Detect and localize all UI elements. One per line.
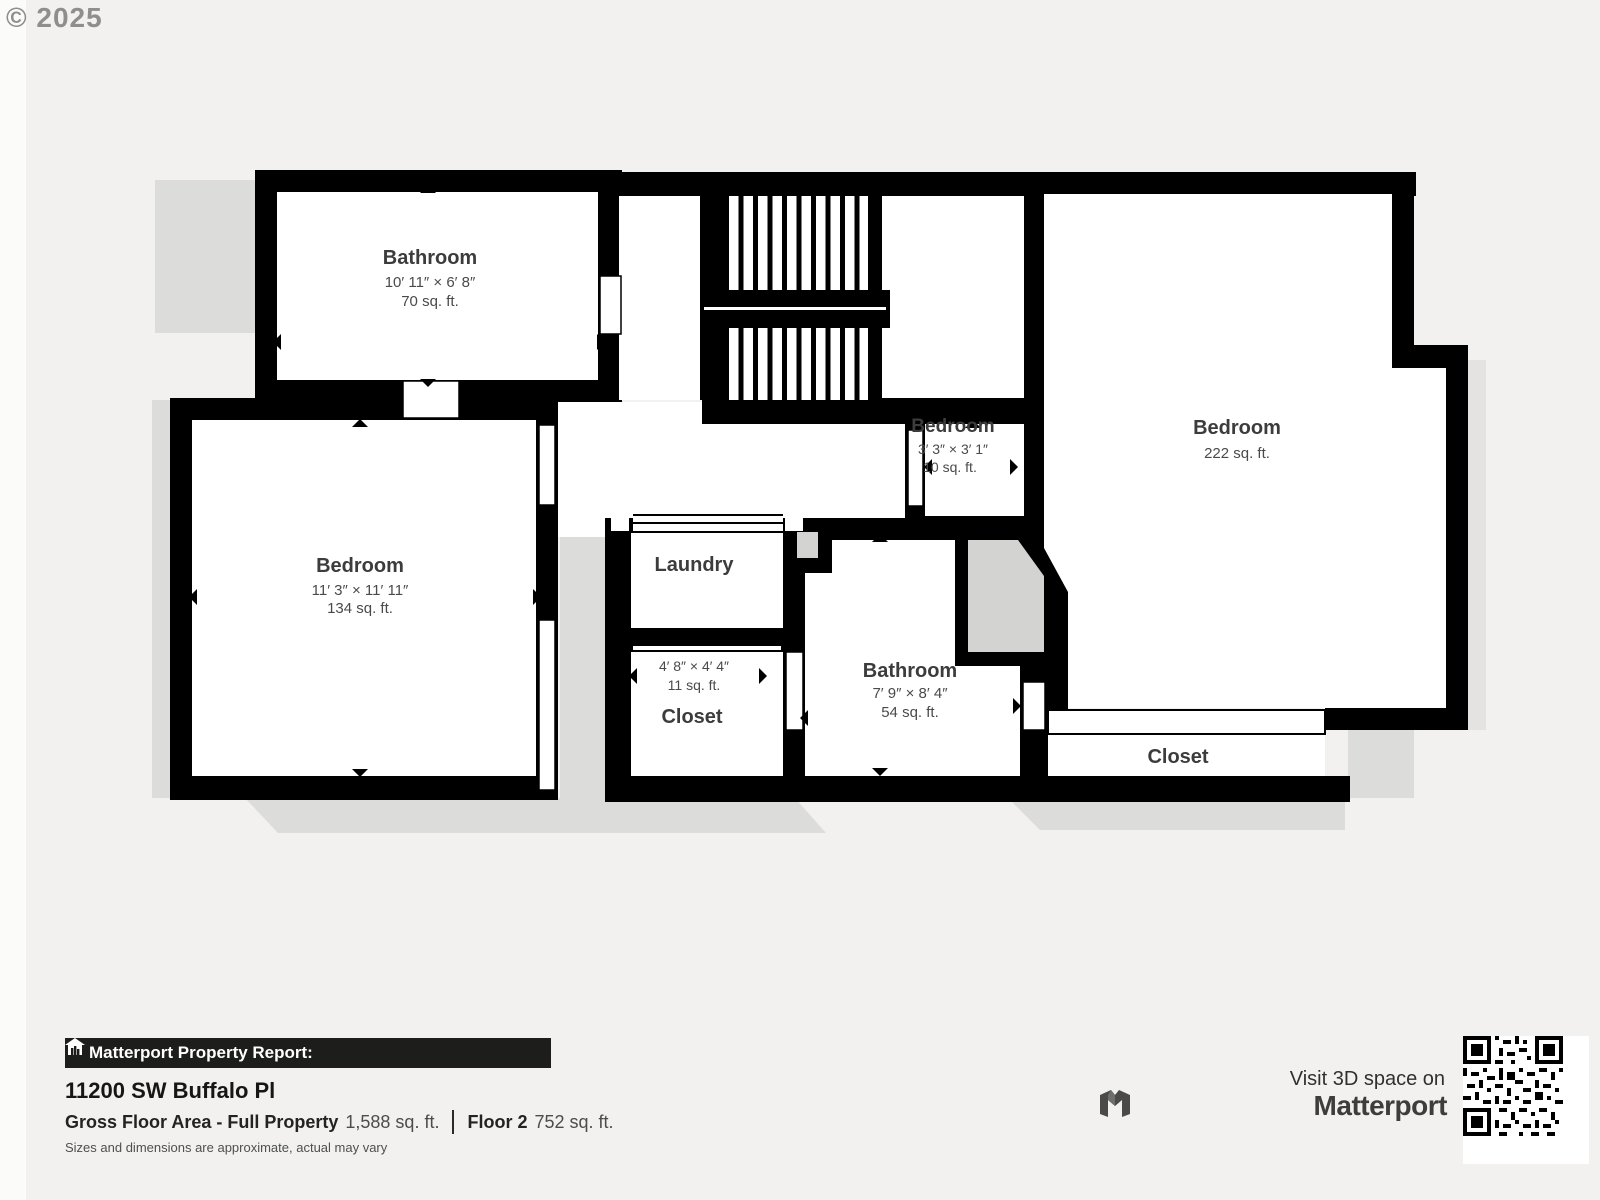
svg-text:134 sq. ft.: 134 sq. ft. [327, 600, 393, 617]
svg-text:7′ 9″ × 8′ 4″: 7′ 9″ × 8′ 4″ [872, 685, 948, 702]
svg-text:Closet: Closet [1147, 746, 1208, 768]
svg-text:54 sq. ft.: 54 sq. ft. [881, 704, 939, 721]
svg-text:10 sq. ft.: 10 sq. ft. [923, 459, 977, 475]
svg-text:3′ 3″ × 3′ 1″: 3′ 3″ × 3′ 1″ [918, 441, 988, 457]
svg-text:Laundry: Laundry [655, 554, 735, 576]
floor-plan: Bathroom 10′ 11″ × 6′ 8″ 70 sq. ft. Bedr… [0, 0, 1600, 1200]
property-address: 11200 SW Buffalo Pl [65, 1078, 275, 1104]
disclaimer-text: Sizes and dimensions are approximate, ac… [65, 1140, 387, 1155]
report-banner-label: Matterport Property Report: [89, 1043, 313, 1063]
svg-text:Closet: Closet [661, 706, 722, 728]
report-banner: Matterport Property Report: [65, 1038, 551, 1068]
area-summary: Gross Floor Area - Full Property 1,588 s… [65, 1110, 614, 1134]
svg-text:4′ 8″ × 4′ 4″: 4′ 8″ × 4′ 4″ [659, 658, 729, 674]
svg-text:10′ 11″ × 6′ 8″: 10′ 11″ × 6′ 8″ [385, 274, 476, 291]
gross-floor-area-label: Gross Floor Area - Full Property [65, 1112, 338, 1133]
svg-text:11 sq. ft.: 11 sq. ft. [668, 677, 721, 693]
divider [452, 1110, 454, 1134]
room-label-closet-right: Closet [1147, 746, 1208, 768]
matterport-link[interactable]: Matterport [1100, 1090, 1447, 1122]
qr-code-card [1463, 1036, 1589, 1164]
visit-3d-label: Visit 3D space on [1100, 1068, 1445, 1091]
staircase [700, 196, 890, 400]
svg-text:Bedroom: Bedroom [911, 416, 994, 437]
matterport-brand-name: Matterport [1314, 1090, 1447, 1122]
svg-text:Bedroom: Bedroom [1193, 417, 1281, 439]
svg-text:70 sq. ft.: 70 sq. ft. [401, 293, 459, 310]
qr-code [1463, 1036, 1563, 1136]
svg-text:Bathroom: Bathroom [863, 660, 957, 682]
svg-text:Bathroom: Bathroom [383, 247, 477, 269]
floor-label: Floor 2 [467, 1112, 527, 1132]
svg-text:11′ 3″ × 11′ 11″: 11′ 3″ × 11′ 11″ [312, 582, 409, 599]
gross-floor-area-value: 1,588 sq. ft. [345, 1112, 439, 1133]
svg-text:222 sq. ft.: 222 sq. ft. [1204, 445, 1270, 462]
room-label-laundry: Laundry [655, 554, 735, 576]
floor-area-value: 752 sq. ft. [534, 1112, 613, 1133]
svg-text:Bedroom: Bedroom [316, 555, 404, 577]
